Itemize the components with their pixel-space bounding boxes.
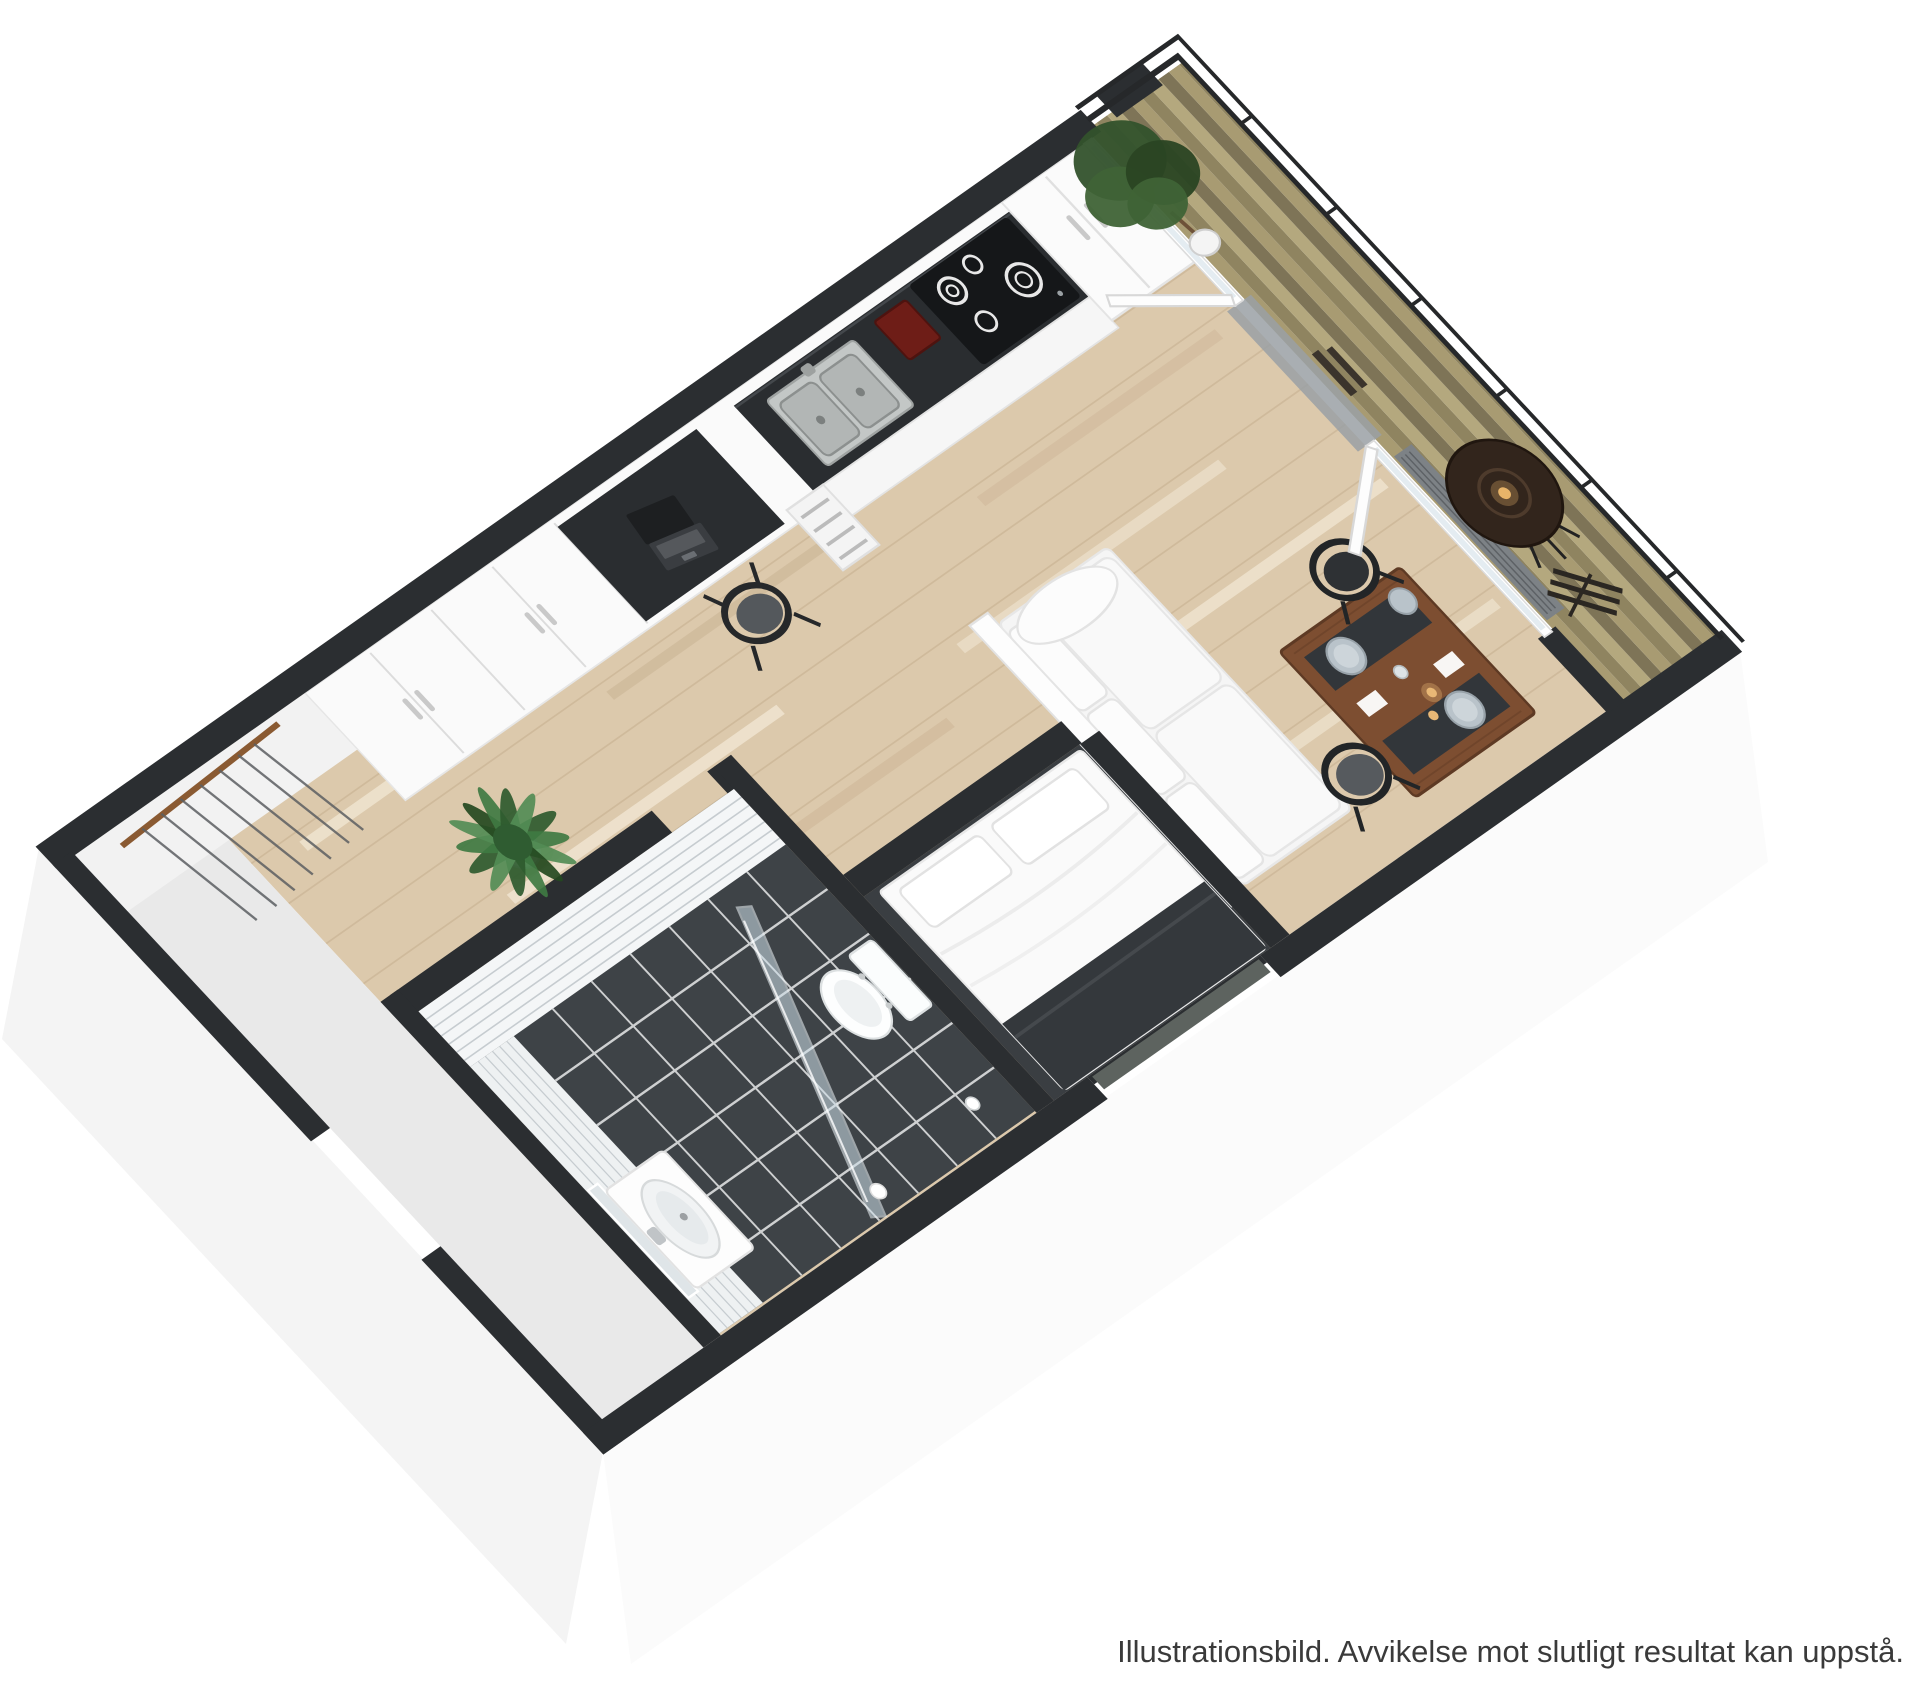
floor-plan-page: Illustrationsbild. Avvikelse mot slutlig… — [0, 0, 1920, 1705]
floor-plan-rendering — [0, 0, 1920, 1705]
disclaimer-caption: Illustrationsbild. Avvikelse mot slutlig… — [1117, 1634, 1904, 1670]
